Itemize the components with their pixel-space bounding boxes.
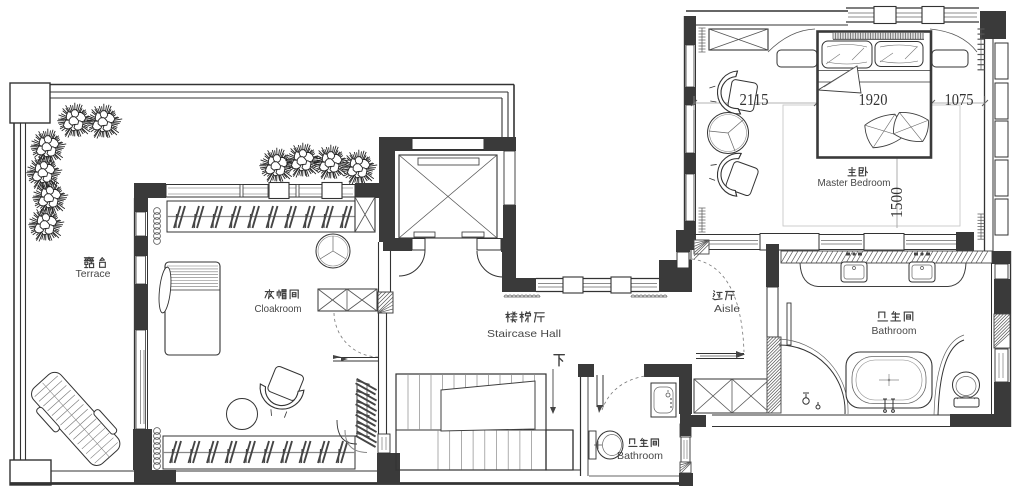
svg-text:Bathroom: Bathroom	[617, 450, 663, 462]
svg-text:Master Bedroom: Master Bedroom	[818, 177, 891, 189]
svg-text:Cloakroom: Cloakroom	[255, 303, 302, 315]
svg-text:Terrace: Terrace	[76, 268, 111, 280]
svg-text:1075: 1075	[945, 90, 974, 109]
svg-text:1920: 1920	[859, 90, 888, 109]
svg-text:2115: 2115	[740, 90, 769, 109]
svg-text:Staircase Hall: Staircase Hall	[487, 328, 561, 340]
svg-text:Bathroom: Bathroom	[872, 325, 917, 337]
svg-text:1500: 1500	[887, 187, 906, 218]
svg-text:Aisle: Aisle	[714, 303, 740, 315]
